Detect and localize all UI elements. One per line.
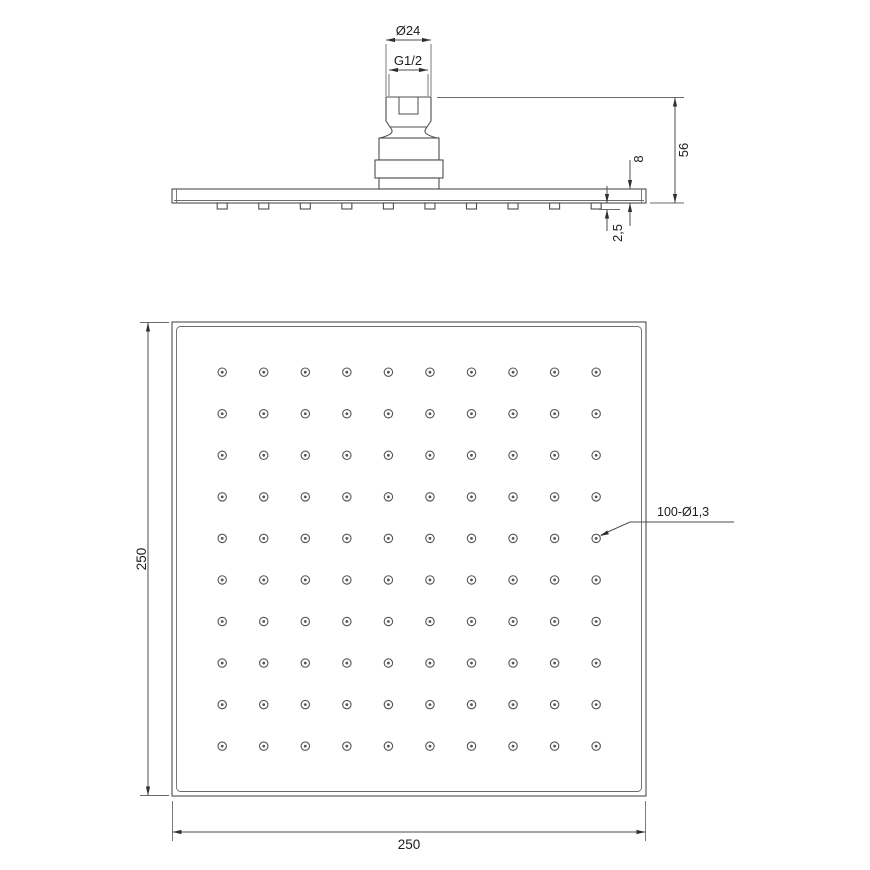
nozzle-hole-center (345, 745, 348, 748)
nozzle-hole-center (221, 620, 224, 623)
nozzle-hole-center (553, 662, 556, 665)
nozzle-hole-center (221, 454, 224, 457)
dim-total-height: 56 (437, 98, 691, 204)
arrowhead (673, 98, 677, 107)
nozzle-hole-center (304, 620, 307, 623)
nozzle-hole-center (553, 495, 556, 498)
arrowhead (173, 830, 182, 834)
nozzle-hole-center (512, 412, 515, 415)
nozzle-hole-center (262, 454, 265, 457)
nozzle-hole-center (262, 537, 265, 540)
arrowhead (605, 210, 609, 219)
dim-nozzle-protrusion-value: 2,5 (610, 224, 625, 242)
arrowhead (389, 68, 398, 72)
nozzle-hole-center (553, 620, 556, 623)
nozzle-hole-center (595, 495, 598, 498)
nozzle-hole-center (595, 454, 598, 457)
nozzle-hole-center (221, 537, 224, 540)
nozzle-hole-center (512, 579, 515, 582)
nozzle-hole-center (304, 412, 307, 415)
dim-face-height: 250 (134, 323, 169, 796)
arrowhead (386, 38, 395, 42)
nozzle-hole-center (470, 454, 473, 457)
nozzle-hole-center (429, 537, 432, 540)
nozzle-hole-center (512, 662, 515, 665)
connector-lower-body (379, 178, 439, 189)
nozzle-hole-center (304, 703, 307, 706)
nozzle-hole-center (429, 620, 432, 623)
arrowhead (673, 194, 677, 203)
nozzle-hole-center (512, 371, 515, 374)
nozzle-hole-center (595, 412, 598, 415)
nozzle-hole-center (221, 703, 224, 706)
nozzle-hole-center (387, 537, 390, 540)
nozzle-hole-center (304, 454, 307, 457)
technical-drawing-canvas: Ø24 G1/2 (0, 0, 870, 870)
nozzle-hole-center (429, 371, 432, 374)
nozzle-hole-center (595, 703, 598, 706)
nozzle-hole-center (470, 703, 473, 706)
nozzle-hole-center (470, 495, 473, 498)
arrowhead (146, 787, 150, 796)
nozzle-hole-center (304, 537, 307, 540)
nozzle-hole-center (387, 495, 390, 498)
nozzle-hole-center (262, 745, 265, 748)
dim-face-height-value: 250 (134, 548, 149, 571)
shower-plate-side (172, 189, 646, 203)
nozzle-hole-center (345, 412, 348, 415)
arrowhead (146, 323, 150, 332)
nozzle-hole-center (345, 454, 348, 457)
nozzle-hole-center (429, 412, 432, 415)
nozzle-hole-center (345, 620, 348, 623)
connector-ring (375, 160, 443, 178)
nozzle-hole-center (221, 371, 224, 374)
nozzle-hole-center (262, 412, 265, 415)
nozzle-hole-center (553, 454, 556, 457)
nozzle-tip (591, 203, 601, 209)
nozzle-hole-center (553, 537, 556, 540)
arrowhead (628, 180, 632, 189)
nozzle-hole-center (262, 703, 265, 706)
dim-thread-size: G1/2 (389, 53, 428, 96)
nozzle-hole-center (553, 579, 556, 582)
nozzle-hole-center (595, 745, 598, 748)
nozzle-hole-center (470, 371, 473, 374)
nozzle-hole-center (262, 495, 265, 498)
nozzle-hole-center (304, 495, 307, 498)
nozzle-hole-center (221, 412, 224, 415)
nozzle-hole-center (262, 579, 265, 582)
nozzle-hole-center (262, 371, 265, 374)
nozzle-hole-center (512, 454, 515, 457)
dim-face-width-value: 250 (398, 837, 421, 852)
nozzle-tip (300, 203, 310, 209)
dim-plate-thickness-value: 8 (631, 155, 646, 162)
nozzle-hole-center (553, 371, 556, 374)
nozzle-hole-center (387, 703, 390, 706)
nozzle-tip (508, 203, 518, 209)
holes-count-label: 100-Ø1,3 (657, 505, 709, 519)
nozzle-hole-center (262, 662, 265, 665)
nozzle-hole-center (221, 745, 224, 748)
nozzle-hole-center (512, 703, 515, 706)
nozzle-hole-center (387, 620, 390, 623)
nozzle-hole-center (595, 620, 598, 623)
nozzle-hole-center (553, 745, 556, 748)
nozzle-hole-center (221, 495, 224, 498)
nozzle-hole-center (429, 662, 432, 665)
nozzle-hole-center (345, 579, 348, 582)
dim-thread-outer-value: Ø24 (396, 23, 421, 38)
nozzle-hole-center (429, 495, 432, 498)
plate-outline (172, 322, 646, 796)
nozzle-hole-center (470, 620, 473, 623)
nozzle-hole-center (304, 579, 307, 582)
nozzle-hole-center (221, 662, 224, 665)
nozzle-hole-center (304, 745, 307, 748)
nozzle-hole-center (512, 495, 515, 498)
nozzle-hole-center (429, 703, 432, 706)
connector-upper-body (379, 138, 439, 160)
nozzle-hole-center (470, 537, 473, 540)
nozzle-hole-center (595, 579, 598, 582)
nozzle-hole-center (345, 703, 348, 706)
nozzle-tip (550, 203, 560, 209)
nozzle-tip (217, 203, 227, 209)
connector-neck-left (380, 127, 392, 138)
nozzle-tip (425, 203, 435, 209)
nozzle-hole-center (221, 579, 224, 582)
nozzle-tip (467, 203, 477, 209)
nozzle-hole-center (470, 745, 473, 748)
dim-face-width: 250 (173, 801, 646, 852)
nozzle-hole-center (512, 745, 515, 748)
nozzle-tip (259, 203, 269, 209)
nozzle-hole-center (387, 745, 390, 748)
nozzle-hole-center (345, 371, 348, 374)
nozzle-hole-center (387, 662, 390, 665)
connector-nut (386, 97, 431, 127)
nozzle-hole-center (429, 454, 432, 457)
nozzle-hole-center (595, 662, 598, 665)
arrowhead (422, 38, 431, 42)
nozzle-hole-center (387, 371, 390, 374)
nozzle-hole-center (304, 371, 307, 374)
arrowhead (628, 203, 632, 212)
nozzle-hole-center (553, 703, 556, 706)
nozzle-hole-center (429, 579, 432, 582)
nozzle-hole-center (262, 620, 265, 623)
nozzle-hole-center (387, 412, 390, 415)
arrowhead (637, 830, 646, 834)
nozzle-hole-center (304, 662, 307, 665)
nozzle-hole-center (512, 537, 515, 540)
nozzle-hole-center (553, 412, 556, 415)
nozzle-hole-center (595, 537, 598, 540)
nozzle-tip (383, 203, 393, 209)
nozzle-tip (342, 203, 352, 209)
nozzle-hole-center (512, 620, 515, 623)
shower-connector (375, 97, 443, 189)
nozzle-hole-center (429, 745, 432, 748)
nozzle-hole-center (387, 454, 390, 457)
nozzle-row (217, 203, 601, 209)
nozzle-hole-center (387, 579, 390, 582)
nozzle-hole-center (470, 662, 473, 665)
nozzle-hole-center (470, 412, 473, 415)
dim-total-height-value: 56 (676, 143, 691, 157)
nozzle-hole-center (595, 371, 598, 374)
face-view: 250 250 100-Ø1,3 (134, 322, 734, 852)
side-view: Ø24 G1/2 (172, 23, 691, 242)
nozzle-hole-center (345, 495, 348, 498)
nozzle-hole-center (345, 537, 348, 540)
connector-neck-right (425, 127, 437, 138)
dim-thread-size-value: G1/2 (394, 53, 422, 68)
nozzle-hole-center (345, 662, 348, 665)
arrowhead (419, 68, 428, 72)
nozzle-hole-center (470, 579, 473, 582)
